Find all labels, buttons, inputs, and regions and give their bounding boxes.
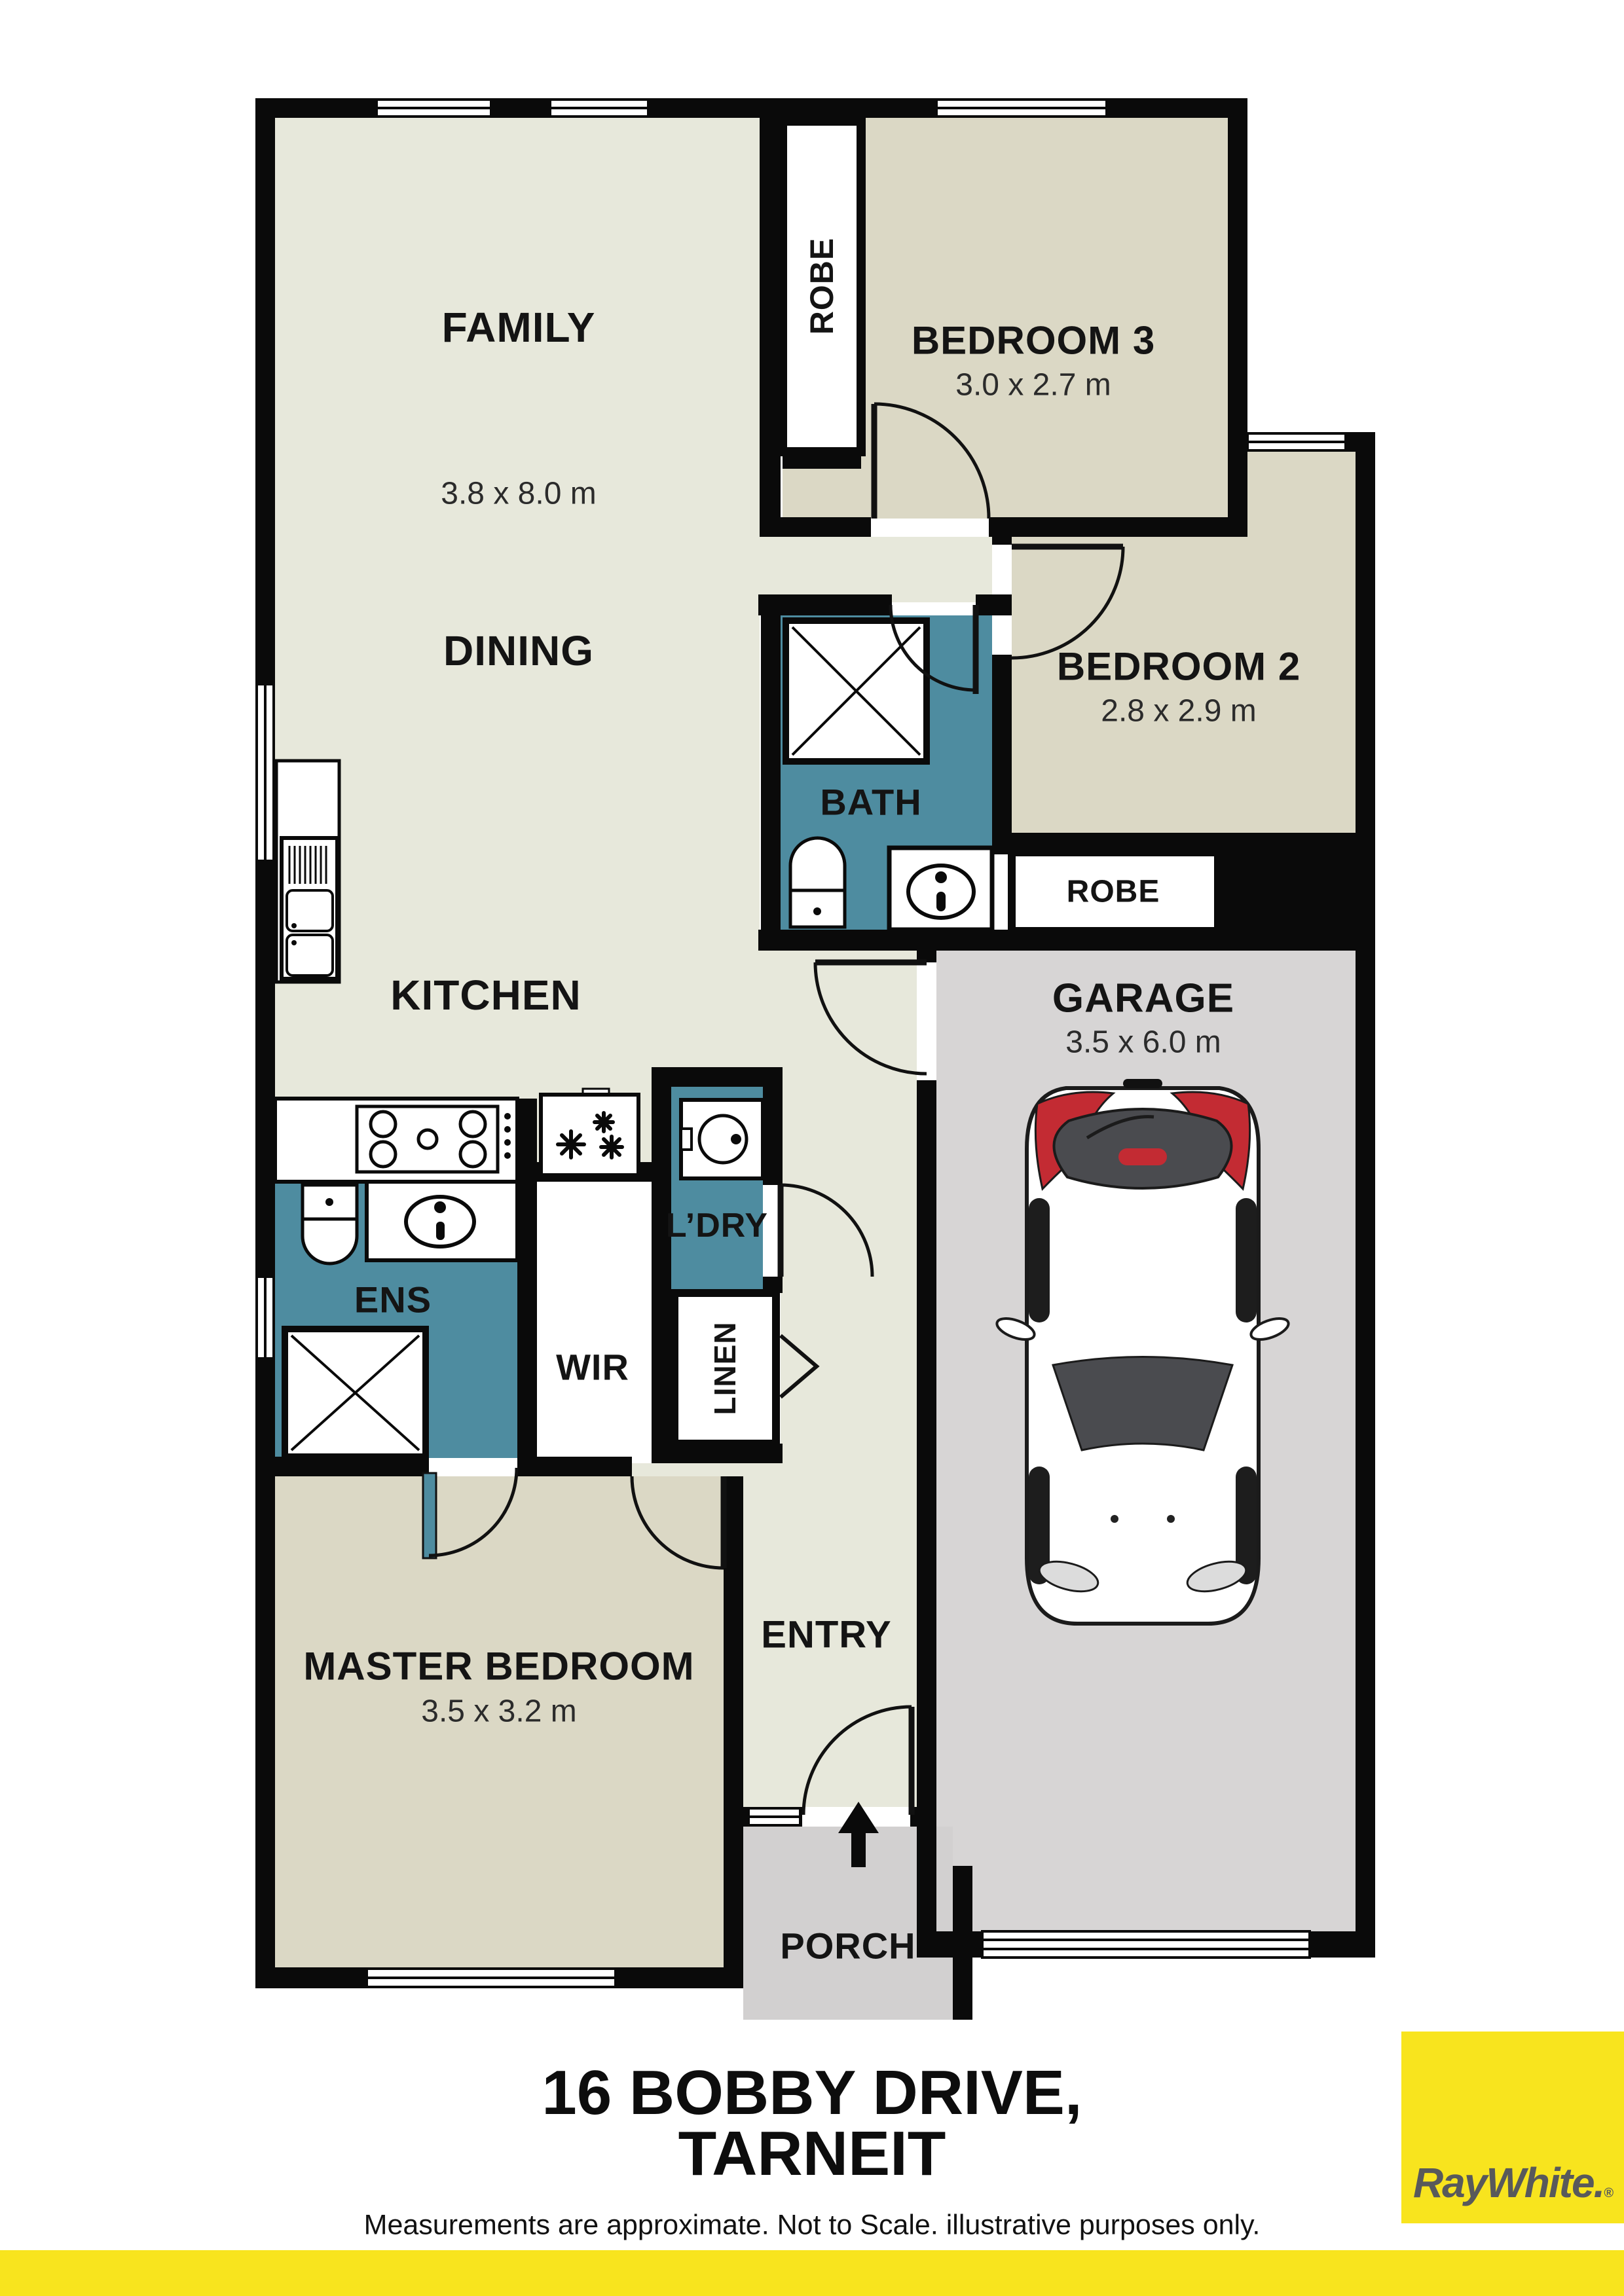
bath-basin-icon [889,848,992,930]
room-label-porch: PORCH [780,1925,915,1967]
room-dims-garage: 3.5 x 6.0 m [1065,1025,1221,1061]
room-label-garage: GARAGE [1052,975,1234,1022]
fridge-icon [541,1089,638,1175]
room-label-master: MASTER BEDROOM [303,1644,694,1689]
ray-white-logo-text: RayWhite.® [1413,2162,1612,2204]
ensuite-toilet-icon [303,1185,357,1264]
room-label-bedroom3: BEDROOM 3 [912,318,1155,363]
address-line-2: TARNEIT [678,2118,946,2190]
garage-door [982,1931,1310,1958]
brand-yellow-strip [0,2250,1624,2296]
ray-white-logo: RayWhite.® [1401,2032,1624,2223]
disclaimer-text: Measurements are approximate. Not to Sca… [364,2210,1261,2242]
room-label-linen: LINEN [707,1322,743,1415]
room-label-ensuite: ENS [354,1279,432,1321]
room-dims-bedroom3: 3.0 x 2.7 m [955,367,1111,403]
cooktop-icon [357,1106,511,1172]
room-dims-master: 3.5 x 3.2 m [421,1694,576,1730]
room-label-robe-bed2: ROBE [1067,874,1160,910]
room-label-entry: ENTRY [761,1613,891,1657]
room-dims-family: 3.8 x 8.0 m [441,476,596,512]
room-label-bedroom2: BEDROOM 2 [1057,644,1301,689]
oven-tower-icon [276,761,339,982]
room-label-wir: WIR [556,1346,629,1389]
room-label-family: FAMILY [442,303,596,352]
ensuite-shower-icon [285,1329,426,1457]
room-label-dining: DINING [443,627,594,675]
registered-mark: ® [1604,2186,1612,2200]
laundry-tub-icon [681,1100,763,1178]
room-label-robe-bed3: ROBE [803,238,841,335]
floor-plan-page: FAMILY 3.8 x 8.0 m DINING KITCHEN ROBE B… [0,0,1624,2296]
bath-shower-icon [786,621,927,761]
room-label-laundry: L’DRY [666,1206,768,1245]
room-dims-bedroom2: 2.8 x 2.9 m [1101,693,1256,729]
room-label-bath: BATH [820,781,921,824]
room-label-kitchen: KITCHEN [390,971,581,1019]
ensuite-basin-icon [367,1182,517,1260]
bath-toilet-icon [790,838,845,927]
car-icon [994,1079,1291,1624]
